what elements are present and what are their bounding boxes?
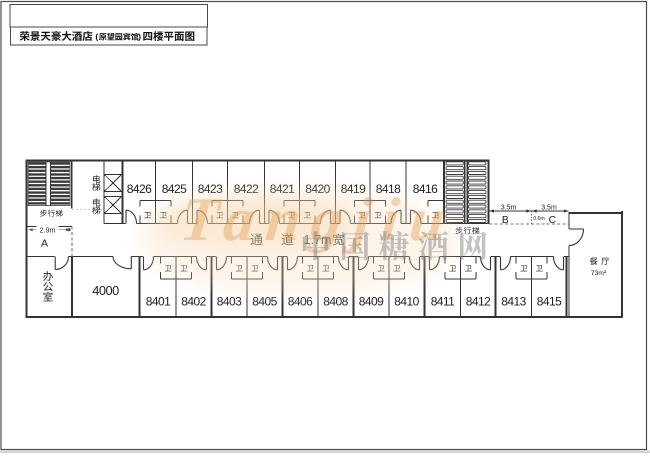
svg-text:8403: 8403 (217, 295, 242, 309)
svg-text:Tangjiu: Tangjiu (177, 186, 459, 254)
svg-text:8406: 8406 (288, 295, 313, 309)
svg-text:2.9m: 2.9m (40, 225, 56, 234)
svg-text:C: C (549, 215, 556, 226)
svg-text:8409: 8409 (359, 295, 384, 309)
svg-text:4000: 4000 (92, 283, 119, 298)
svg-text:8402: 8402 (181, 295, 206, 309)
svg-text:8410: 8410 (394, 295, 419, 309)
svg-text:8415: 8415 (537, 295, 562, 309)
svg-text:8408: 8408 (323, 295, 348, 309)
svg-text:8411: 8411 (431, 295, 455, 309)
svg-text:8426: 8426 (127, 182, 152, 196)
svg-text:3.5m: 3.5m (541, 204, 557, 211)
svg-text:8401: 8401 (146, 295, 171, 309)
svg-text:8413: 8413 (501, 295, 526, 309)
svg-text:): ) (138, 31, 141, 41)
svg-text:8412: 8412 (466, 295, 491, 309)
svg-text:3.5m: 3.5m (501, 204, 517, 211)
svg-text:0.6m: 0.6m (533, 216, 545, 222)
svg-text:A: A (41, 238, 48, 250)
svg-text:8405: 8405 (252, 295, 277, 309)
svg-text:(: ( (95, 31, 98, 41)
svg-text:B: B (502, 215, 509, 226)
svg-text:73m²: 73m² (591, 270, 607, 277)
